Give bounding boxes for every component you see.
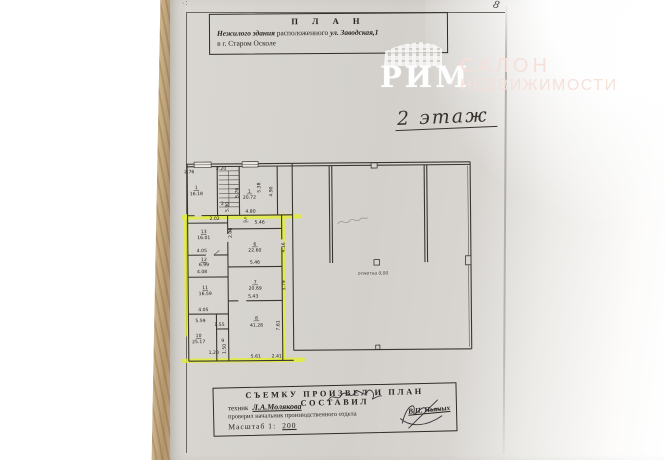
plan-label: 2.76 <box>184 169 194 175</box>
plan-title: П Л А Н <box>210 15 447 27</box>
plan-label: 16.59 <box>199 291 212 297</box>
plan-label: 25.17 <box>192 339 205 345</box>
plan-label: 22.60 <box>248 248 261 254</box>
watermark-brand: РИМ <box>380 60 470 94</box>
plan-dimension-labels: 2.762.20116.1825.905.76120.725.384.904.8… <box>184 164 389 360</box>
plan-label: 2.02 <box>209 216 219 222</box>
plan-label: 9 <box>221 338 224 344</box>
plan-label: 5.76 <box>234 188 240 198</box>
document-photo: ·: 8 П Л А Н Нежилого здания расположенн… <box>0 0 670 460</box>
plan-label: 1.20 <box>209 350 219 356</box>
watermark-nedvizhimost: НЕДВИЖИМОСТИ <box>460 77 618 95</box>
plan-label: 1.55 <box>214 322 224 328</box>
plan-label: 2.41 <box>272 353 282 359</box>
plan-label: 5.90 <box>224 202 230 212</box>
plan-label: 4.16 <box>281 242 287 252</box>
plan-label: 5.46 <box>254 220 264 226</box>
plan-label: 6.99 <box>199 262 209 268</box>
plan-label: 4.80 <box>245 209 255 215</box>
plan-label: 5.61 <box>251 354 261 360</box>
scale-label: Масштаб 1: <box>228 421 276 431</box>
plan-label: 3.79 <box>281 280 287 290</box>
plan-label: 5.59 <box>195 318 205 324</box>
plan-label: 4.08 <box>197 269 207 275</box>
plan-label: 1.50 <box>222 344 228 354</box>
technician-role: техник <box>228 404 249 412</box>
page-number-mark: 8 <box>492 0 501 12</box>
columns <box>371 162 472 349</box>
plan-label: 2 <box>221 201 224 207</box>
plan-label: 2.06 <box>228 228 234 238</box>
plan-label: 5.43 <box>248 294 258 300</box>
plan-label: 16.18 <box>190 191 203 197</box>
checker-row: проверил начальник производственного отд… <box>228 411 357 421</box>
plan-label: 41.28 <box>250 323 263 329</box>
plan-label: отметка 0,00 <box>358 270 389 276</box>
surveyor-title-block: СЪЕМКУ ПРОИЗВЕЛ И ПЛАН СОСТАВИЛ техникЛ.… <box>212 382 457 437</box>
corner-marks: ·: <box>182 0 188 7</box>
subtitle-address: ул. Заводская,1 <box>330 28 378 37</box>
floor-label: 2 этаж <box>395 104 498 131</box>
plan-subtitle: Нежилого здания расположенного ул. Завод… <box>217 27 447 38</box>
paper-sheet: ·: 8 П Л А Н Нежилого здания расположенн… <box>170 0 665 460</box>
plan-label: 5.46 <box>250 260 260 266</box>
plan-label: 20.72 <box>243 195 256 201</box>
plan-label: 20.69 <box>249 286 262 292</box>
technician-row: техникЛ.А.Молякова <box>228 402 302 413</box>
pen-scribble <box>338 218 368 224</box>
scale-value: 200 <box>282 421 297 430</box>
watermark-salon: САЛОН <box>460 55 551 78</box>
plan-label: 5.38 <box>256 182 262 192</box>
plan-label: 7.61 <box>275 320 281 330</box>
floor-plan-drawing: 2.762.20116.1825.905.76120.725.384.904.8… <box>179 154 481 377</box>
plan-label: 2.20 <box>216 166 226 172</box>
plan-label: 16.01 <box>197 235 210 241</box>
technician-name: Л.А.Молякова <box>252 402 301 412</box>
subtitle-building: Нежилого здания <box>217 28 275 37</box>
scale-row: Масштаб 1:200 <box>228 421 296 432</box>
plan-label: 4.90 <box>268 186 274 196</box>
plan-label: 4.05 <box>198 307 208 313</box>
subtitle-mid: расположенного <box>275 28 330 37</box>
plan-label: 4.05 <box>197 248 207 254</box>
